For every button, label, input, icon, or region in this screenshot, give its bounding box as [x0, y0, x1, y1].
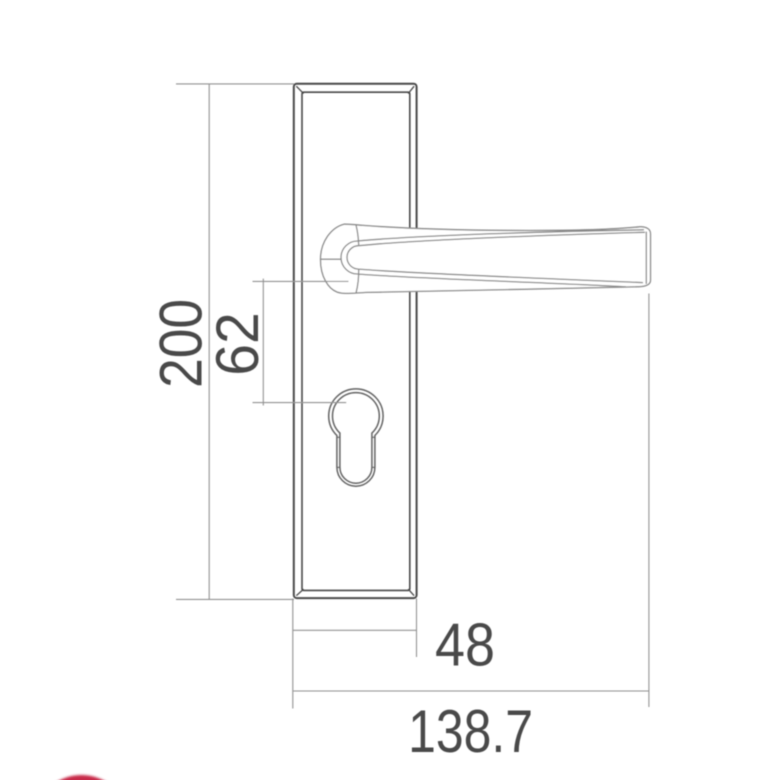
svg-text:62: 62: [204, 312, 271, 376]
svg-text:48: 48: [435, 611, 495, 678]
svg-text:138.7: 138.7: [408, 698, 533, 765]
